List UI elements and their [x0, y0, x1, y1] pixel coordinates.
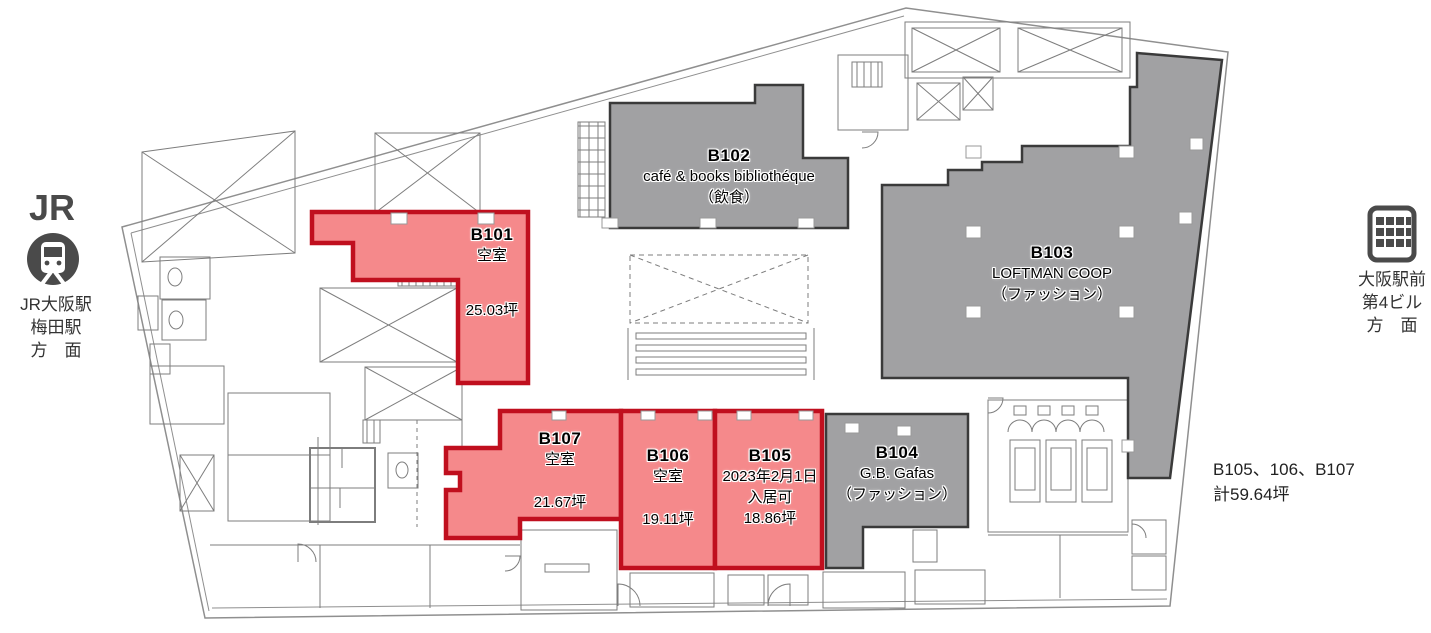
unit-area-text: 19.11坪 [642, 509, 693, 530]
unit-label-b103: B103 LOFTMAN COOP （ファッション） [992, 242, 1112, 305]
unit-area-text: 18.86坪 [722, 508, 817, 529]
unit-id: B106 [642, 445, 693, 466]
unit-status: 空室 [466, 245, 519, 266]
unit-tenant: café & books bibliothéque [643, 166, 815, 187]
right-landmark-line: 方 面 [1336, 314, 1431, 337]
unit-tenant: G.B. Gafas [837, 463, 957, 484]
left-station-line: 梅田駅 [0, 316, 112, 339]
unit-category: （ファッション） [992, 284, 1112, 305]
unit-label-b101: B101 空室 25.03坪 [466, 224, 519, 321]
unit-status: 空室 [534, 449, 587, 470]
unit-id: B107 [534, 428, 587, 449]
right-landmark-label: 大阪駅前 第4ビル 方 面 [1336, 268, 1431, 337]
unit-area-text: 21.67坪 [534, 492, 587, 513]
unit-label-b107: B107 空室 21.67坪 [534, 428, 587, 513]
unit-label-b106: B106 空室 19.11坪 [642, 445, 693, 530]
train-icon [24, 230, 82, 293]
unit-move-in-note: 入居可 [722, 487, 817, 508]
unit-category: （ファッション） [837, 484, 957, 505]
unit-id: B103 [992, 242, 1112, 263]
unit-label-b105: B105 2023年2月1日 入居可 18.86坪 [722, 445, 817, 529]
unit-status: 空室 [642, 466, 693, 487]
floor-plan-page: B101 空室 25.03坪 B102 café & books bibliot… [0, 0, 1431, 633]
floor-plan-drawing [0, 0, 1431, 633]
building-icon [1367, 205, 1417, 268]
left-station-label: JR大阪駅 梅田駅 方 面 [0, 293, 112, 362]
svg-text:JR: JR [29, 188, 75, 228]
vacancy-summary-note: B105、106、B107 計59.64坪 [1213, 457, 1355, 507]
unit-label-b102: B102 café & books bibliothéque （飲食） [643, 145, 815, 208]
unit-id: B101 [466, 224, 519, 245]
jr-logo: JR [20, 188, 84, 233]
left-station-line: 方 面 [0, 339, 112, 362]
right-landmark-line: 第4ビル [1336, 291, 1431, 314]
unit-id: B105 [722, 445, 817, 466]
note-total-area: 計59.64坪 [1213, 482, 1355, 507]
unit-area-text: 25.03坪 [466, 300, 519, 321]
unit-label-b104: B104 G.B. Gafas （ファッション） [837, 442, 957, 505]
unit-id: B102 [643, 145, 815, 166]
unit-move-in-date: 2023年2月1日 [722, 466, 817, 487]
unit-id: B104 [837, 442, 957, 463]
note-units: B105、106、B107 [1213, 457, 1355, 482]
unit-category: （飲食） [643, 187, 815, 208]
unit-tenant: LOFTMAN COOP [992, 263, 1112, 284]
left-station-line: JR大阪駅 [0, 293, 112, 316]
right-landmark-line: 大阪駅前 [1336, 268, 1431, 291]
